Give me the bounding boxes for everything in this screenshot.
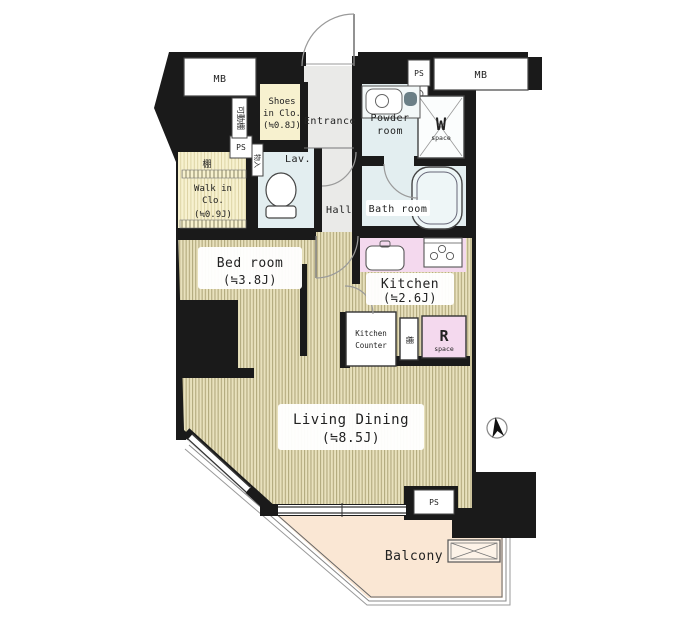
kitchen-shelf-label: 棚 (405, 336, 415, 344)
pillar-stub (176, 368, 254, 378)
wall-kitchen-left (352, 236, 360, 284)
wall-lav-hall (314, 148, 322, 232)
ps-left-label: PS (236, 143, 246, 152)
washer-space-label-big: W (436, 115, 447, 135)
floor-plan: MB MB PS Shoes in Clo. (≒0.8J) Entrance … (0, 0, 700, 622)
window-living-south (278, 503, 406, 517)
powder-room-label-1: Powder (370, 113, 409, 124)
fridge-space-label-big: R (439, 327, 449, 345)
living-dining-size-label: (≒8.5J) (322, 431, 380, 446)
bath-room-label: Bath room (369, 204, 428, 215)
ps-top-label: PS (414, 69, 424, 78)
living-dining-label: Living Dining (293, 412, 409, 428)
kitchen-size-label: (≒2.6J) (383, 291, 437, 305)
walkin-closet-label-1: Walk in (194, 184, 232, 194)
wic-shelf-top (182, 170, 246, 178)
fridge-space-label-small: space (434, 345, 454, 353)
wall-bedroom-top (176, 228, 316, 240)
walkin-closet-label-3: (≒0.9J) (194, 210, 232, 220)
bedroom-label: Bed room (217, 256, 284, 271)
lav-label: Lav. (285, 154, 311, 165)
entrance-label: Entrance (304, 116, 356, 127)
wall-powder-bath-a (356, 156, 384, 166)
kitchen-counter-box (346, 312, 396, 366)
hall-floor (322, 140, 356, 236)
shoes-closet-label-3: (≒0.8J) (263, 121, 301, 131)
entrance-floor-top (304, 66, 354, 86)
evacuation-hatch-icon (448, 540, 500, 562)
mb-left-label: MB (213, 74, 226, 85)
bedroom-size-label: (≒3.8J) (223, 273, 277, 287)
hall-label: Hall (326, 205, 352, 216)
kitchen-counter-label-1: Kitchen (355, 329, 387, 338)
wall-bath-kitchen (356, 226, 476, 238)
movable-shelf-label: 可動棚 (236, 106, 246, 130)
shoes-closet-label-1: Shoes (268, 97, 295, 107)
pillar-left (176, 300, 238, 378)
stove-icon (424, 238, 462, 267)
ps-bottom-label: PS (429, 498, 439, 507)
kitchen-label: Kitchen (381, 277, 439, 292)
wic-shelf-bottom (180, 220, 246, 228)
shoes-closet-label-2: in Clo. (263, 109, 301, 119)
wall-entrance-powder (352, 56, 362, 236)
washer-space-label-small: space (431, 134, 451, 142)
lav-cabinet-label: 物入 (253, 154, 262, 168)
floor-plan-svg: MB MB PS Shoes in Clo. (≒0.8J) Entrance … (0, 0, 700, 622)
kitchen-counter-label-2: Counter (355, 341, 387, 350)
mb-right-label: MB (474, 70, 487, 81)
balcony-label: Balcony (385, 549, 443, 564)
walkin-closet-label-2: Clo. (202, 196, 224, 206)
wic-shelf-label: 棚 (202, 158, 211, 170)
bathtub-icon (412, 167, 462, 229)
powder-room-label-2: room (377, 126, 403, 137)
toilet-icon (266, 173, 296, 218)
